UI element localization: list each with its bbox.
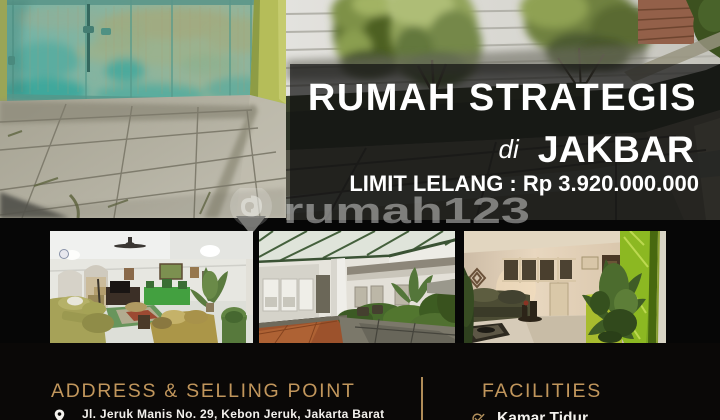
svg-text:rumah123: rumah123 <box>283 190 530 231</box>
